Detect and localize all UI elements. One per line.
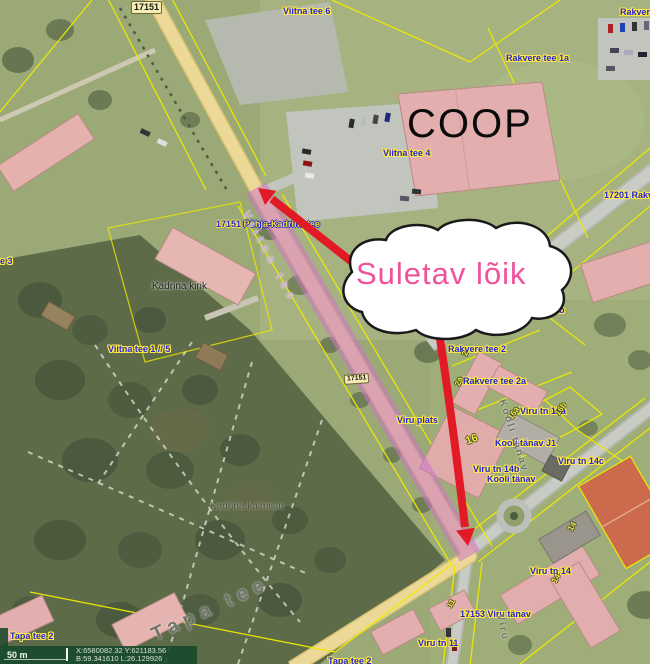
scale-tick (66, 648, 68, 661)
scalebar-notch (0, 628, 8, 646)
label-tapa-tee-2: Tapa tee 2 (10, 631, 53, 641)
label-kooli-tanav: Kooli tänav (487, 474, 536, 484)
label-viru-tn-14c: Viru tn 14c (558, 456, 604, 466)
route-17151-badge-small: 17151 (344, 373, 370, 385)
closure-callout-text: Suletav lõik (356, 256, 527, 292)
label-viitna-tee-1-5: Viitna tee 1 // 5 (108, 344, 170, 354)
label-viru-plats: Viru plats (397, 415, 438, 425)
route-17151-badge: 17151 (131, 1, 162, 14)
scale-line (4, 659, 66, 660)
label-tapa-tee-2-cut: Tapa tee 2 (328, 656, 371, 664)
watermark-tapa-tee: Tapa tee (148, 572, 273, 647)
label-rakvere-cut: Rakvere (620, 7, 650, 17)
label-kadrina-kirik: Kadrina kirik (152, 281, 207, 292)
label-layer: 17151 17151 Viitna tee 6 Rakvere Rakvere… (0, 0, 650, 664)
label-rakvere-tee-2b: Rakvere tee 2b (501, 305, 565, 315)
label-viitna-tee-6: Viitna tee 6 (283, 6, 330, 16)
parcel-11: 11 (445, 598, 457, 610)
label-kadrina-kalmistu: Kadrina kalmistu (210, 501, 284, 512)
label-coop: COOP (407, 102, 533, 147)
cursor-coordinates: X:6580082.32 Y:621183.56 B:59.341610 L:2… (76, 647, 166, 663)
label-kooli-tanav-j1: Kooli tänav J1 (495, 438, 556, 448)
label-tee-3-cut: e 3 (0, 256, 13, 266)
parcel-14-upper: 14 (566, 520, 578, 532)
label-road-17151: 17151 Põhja-Kadrina tee (216, 219, 320, 229)
coordinate-bl: B:59.341610 L:26.129926 (76, 655, 166, 663)
parcel-16: 16 (464, 432, 480, 447)
label-17201-rakvere: 17201 Rakv (604, 190, 650, 200)
label-rakvere-tee-2a: Rakvere tee 2a (463, 376, 526, 386)
label-viru-tn-11: Viru tn 11 (418, 638, 458, 648)
label-rakvere-tee-1a: Rakvere tee 1a (506, 53, 569, 63)
road-number: 17151 (216, 219, 241, 229)
scale-coordinate-bar: 50 m X:6580082.32 Y:621183.56 B:59.34161… (0, 646, 197, 664)
map-canvas[interactable]: 17151 17151 Viitna tee 6 Rakvere Rakvere… (0, 0, 650, 664)
label-viru-tn-14b: Viru tn 14b (473, 464, 519, 474)
label-viitna-tee-4: Viitna tee 4 (383, 148, 430, 158)
label-viru-tn-14: Viru tn 14 (530, 566, 571, 576)
label-rakvere-tee-2: Rakvere tee 2 (448, 344, 506, 354)
